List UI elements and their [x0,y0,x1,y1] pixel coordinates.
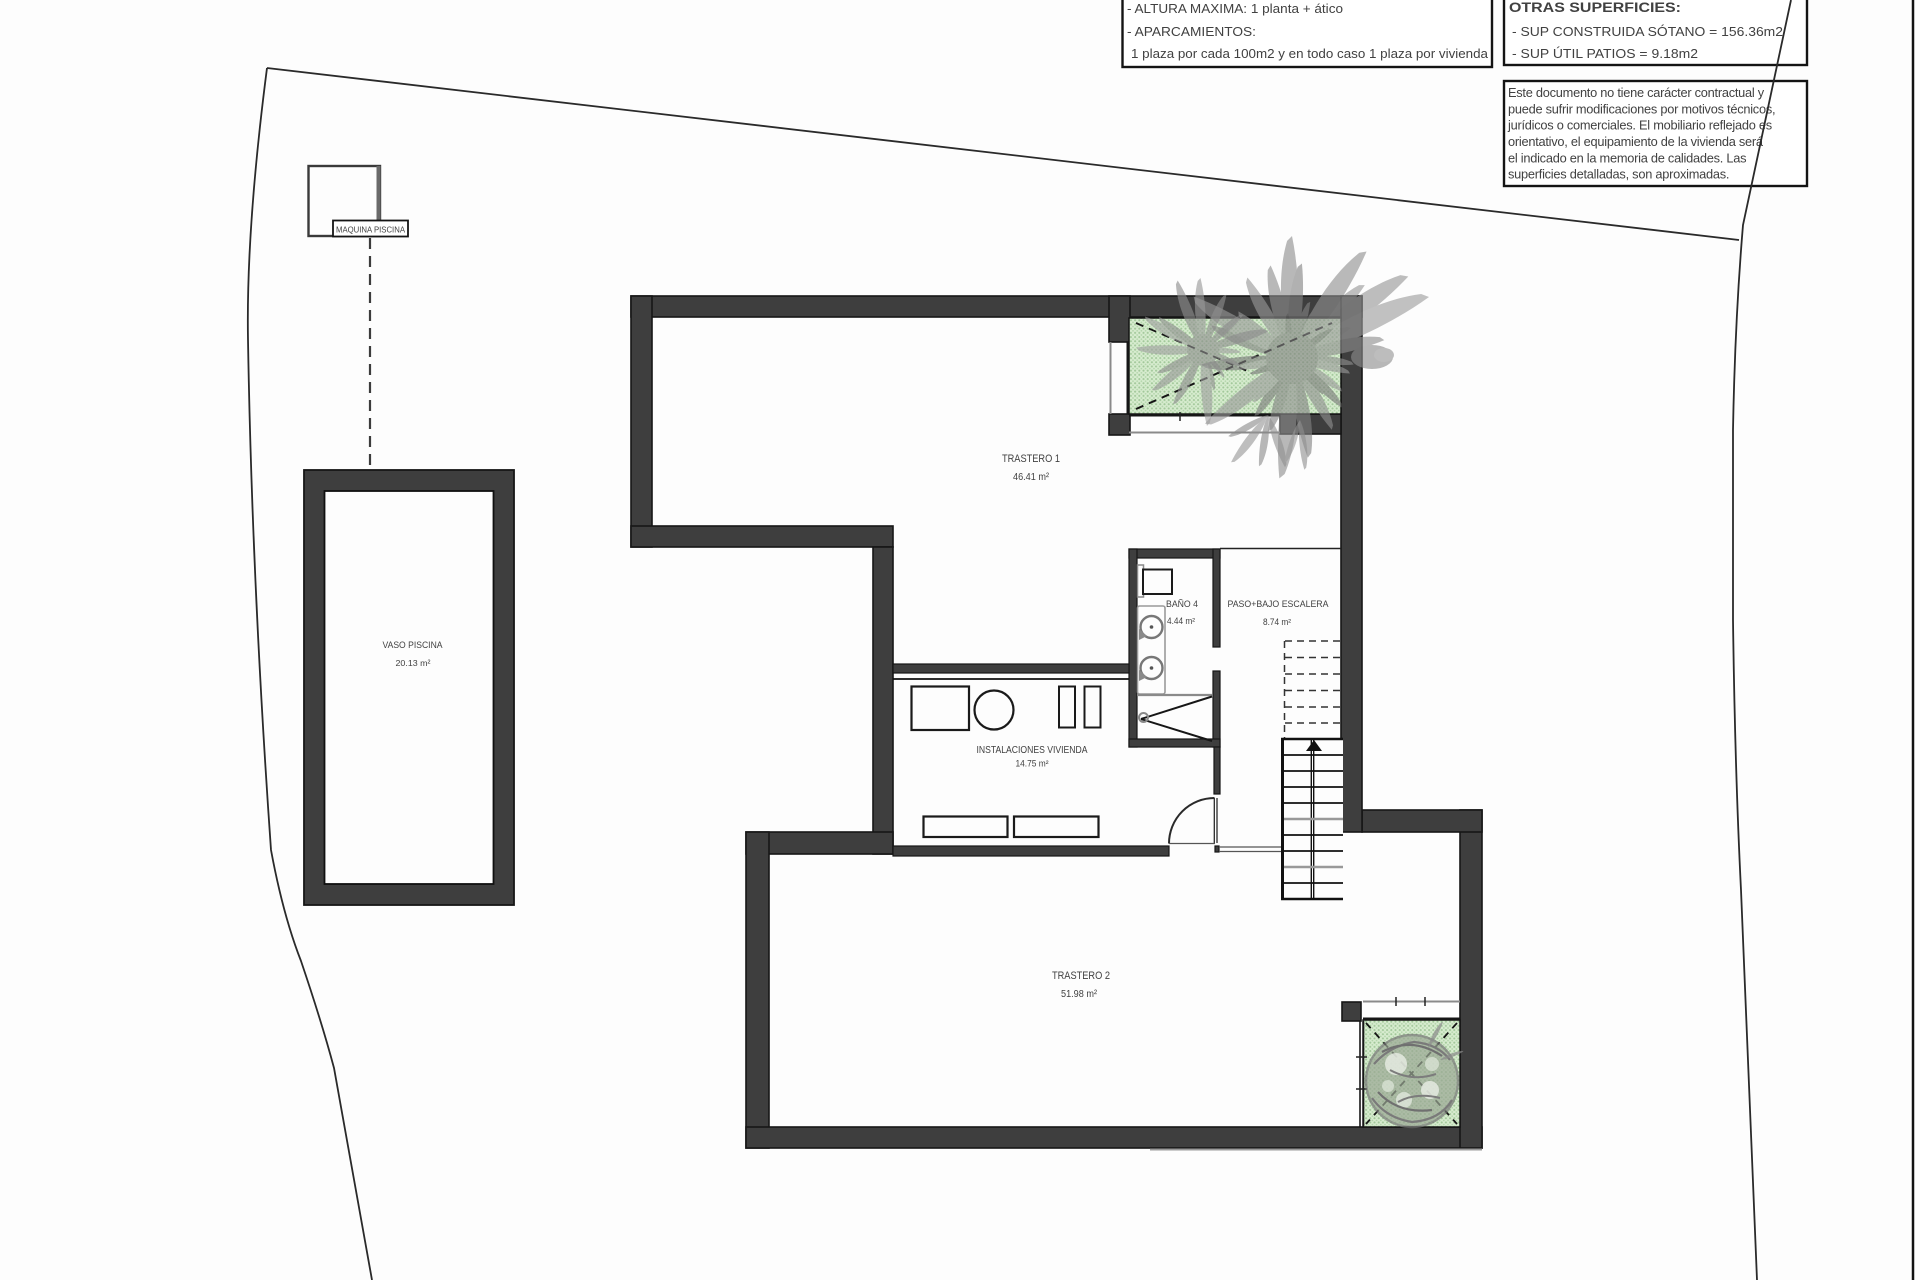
svg-text:orientativo, el equipamiento d: orientativo, el equipamiento de la vivie… [1508,134,1764,149]
svg-text:- APARCAMIENTOS:: - APARCAMIENTOS: [1127,24,1256,39]
svg-text:TRASTERO 2: TRASTERO 2 [1052,970,1110,982]
svg-text:INSTALACIONES VIVIENDA: INSTALACIONES VIVIENDA [977,745,1088,756]
svg-text:- SUP ÚTIL PATIOS = 9.18m2: - SUP ÚTIL PATIOS = 9.18m2 [1512,46,1698,61]
svg-text:OTRAS SUPERFICIES:: OTRAS SUPERFICIES: [1509,0,1681,15]
svg-text:MAQUINA PISCINA: MAQUINA PISCINA [336,225,405,235]
svg-text:51.98 m²: 51.98 m² [1061,989,1098,1000]
svg-text:BAÑO 4: BAÑO 4 [1166,599,1198,610]
svg-text:PASO+BAJO ESCALERA: PASO+BAJO ESCALERA [1228,599,1330,610]
svg-text:8.74 m²: 8.74 m² [1263,617,1291,627]
svg-text:4.44 m²: 4.44 m² [1167,616,1195,626]
svg-text:puede sufrir modificaciones po: puede sufrir modificaciones por motivos … [1508,101,1775,116]
svg-text:1 plaza por cada 100m2 y en to: 1 plaza por cada 100m2 y en todo caso 1 … [1131,46,1489,61]
svg-text:20.13 m²: 20.13 m² [396,658,431,668]
svg-text:VASO PISCINA: VASO PISCINA [383,640,444,651]
svg-text:- SUP CONSTRUIDA SÓTANO = 15: - SUP CONSTRUIDA SÓTANO = 156.36m2 [1512,24,1783,39]
svg-text:jurídicos o comerciales. El mo: jurídicos o comerciales. El mobiliario r… [1507,118,1772,133]
svg-text:TRASTERO 1: TRASTERO 1 [1002,453,1060,465]
svg-text:- ALTURA MAXIMA: 1 planta + át: - ALTURA MAXIMA: 1 planta + ático [1127,1,1343,16]
svg-text:46.41 m²: 46.41 m² [1013,472,1050,483]
svg-text:Este documento no tiene caráct: Este documento no tiene carácter contrac… [1508,85,1765,100]
svg-text:superficies detalladas, son ap: superficies detalladas, son aproximadas. [1508,167,1729,182]
svg-text:el indicado en la memoria de c: el indicado en la memoria de calidades. … [1508,150,1746,165]
svg-text:14.75 m²: 14.75 m² [1016,759,1049,769]
